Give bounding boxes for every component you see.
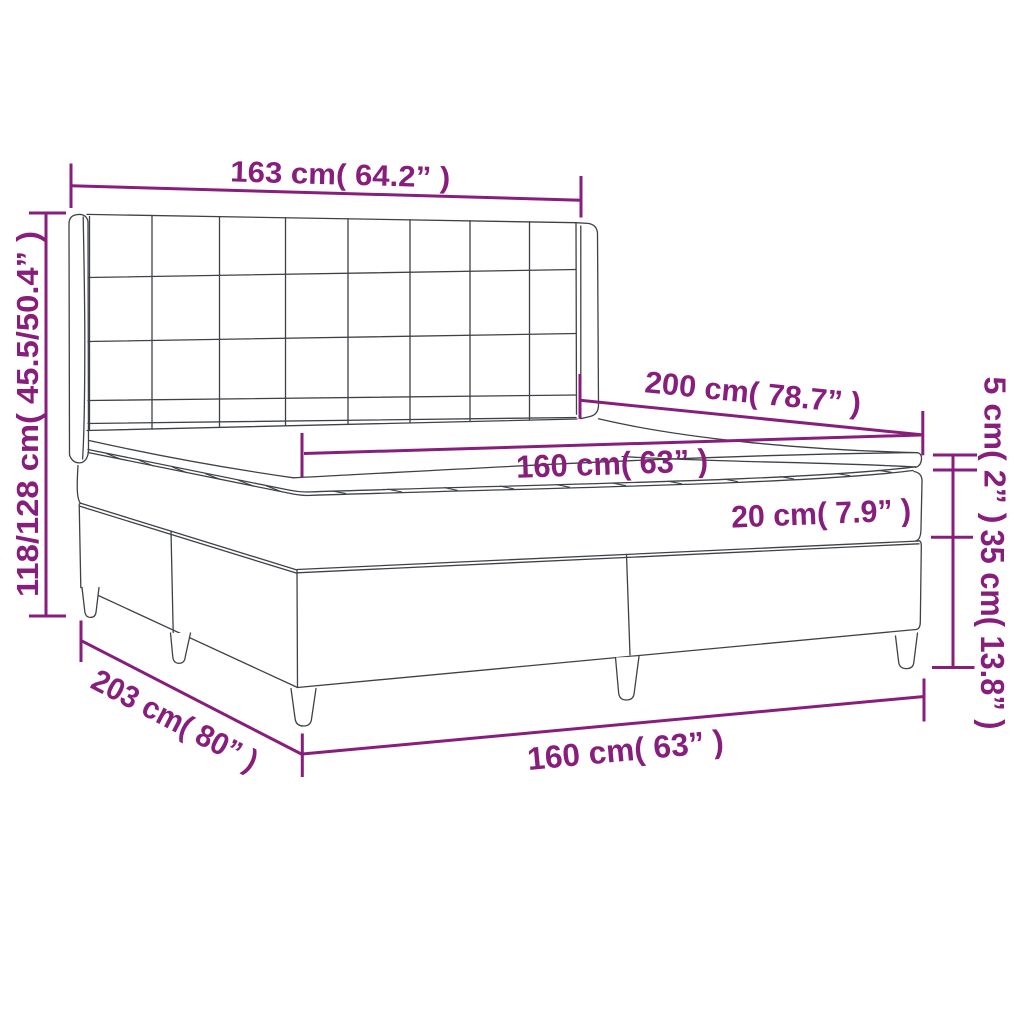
svg-text:35 cm( 13.8” ): 35 cm( 13.8” )	[974, 530, 1011, 730]
svg-text:5 cm( 2” ): 5 cm( 2” )	[978, 377, 1013, 524]
svg-text:163 cm( 64.2” ): 163 cm( 64.2” )	[230, 155, 451, 194]
svg-text:118/128 cm( 45.5/50.4” ): 118/128 cm( 45.5/50.4” )	[10, 231, 45, 597]
svg-text:20 cm( 7.9” ): 20 cm( 7.9” )	[730, 492, 911, 534]
svg-text:160 cm( 63” ): 160 cm( 63” )	[516, 442, 709, 485]
svg-text:200 cm( 78.7” ): 200 cm( 78.7” )	[643, 365, 862, 421]
